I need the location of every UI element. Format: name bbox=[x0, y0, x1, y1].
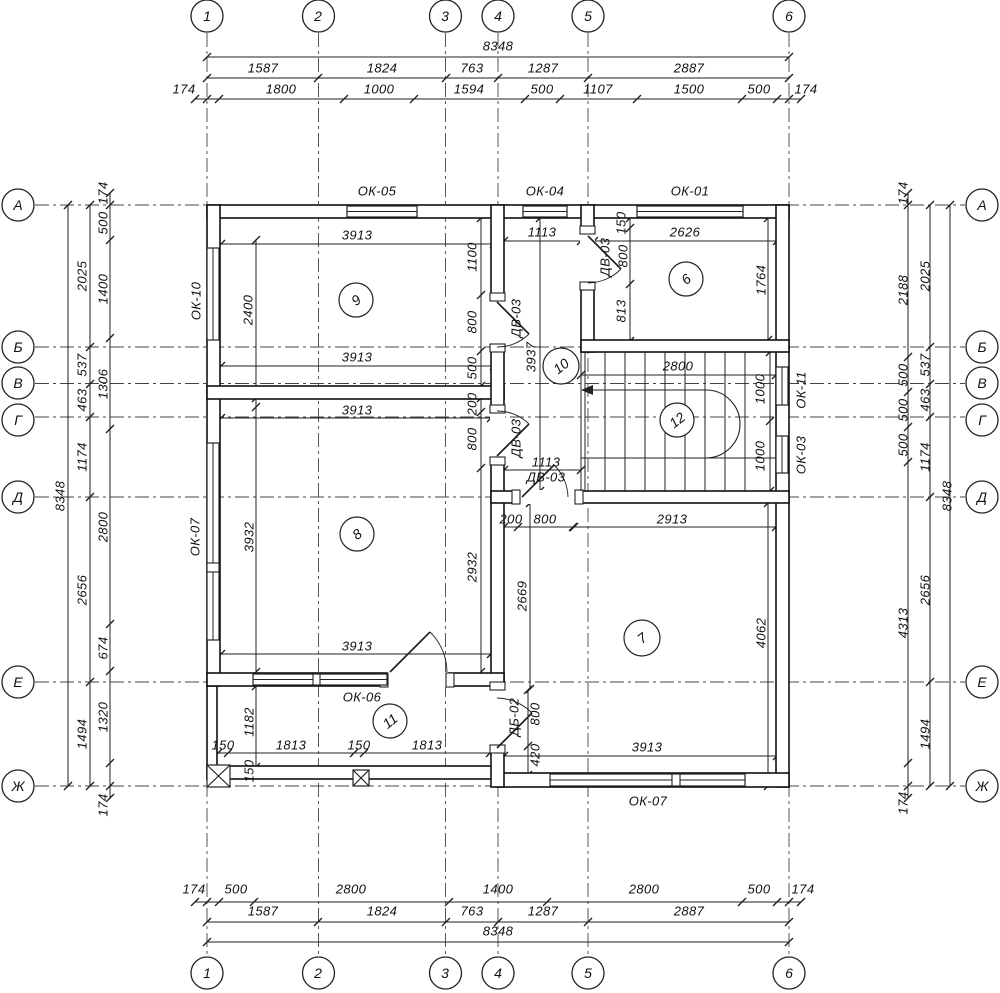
door-label: ДВ-03 bbox=[598, 238, 613, 277]
dim-label: 500 bbox=[896, 434, 911, 457]
dim-label: 500 bbox=[748, 882, 771, 897]
axis-label: Е bbox=[977, 674, 986, 690]
axis-label: А bbox=[977, 197, 986, 213]
dim-label: 3913 bbox=[342, 350, 373, 365]
floor-plan-sheet: 1 2 3 4 5 6 1 2 3 4 5 6 А Б В Г Д Е Ж А … bbox=[0, 0, 1000, 993]
axis-label: В bbox=[977, 375, 986, 391]
door-label: ДВ-03 bbox=[509, 299, 524, 338]
dim-label: 3913 bbox=[342, 228, 373, 243]
dim-label: 174 bbox=[96, 182, 111, 205]
dim-label: 174 bbox=[795, 82, 818, 97]
axis-label: 6 bbox=[785, 965, 793, 981]
dim-label: 1400 bbox=[96, 274, 111, 305]
axis-label: 6 bbox=[785, 8, 793, 24]
dim-label: 2188 bbox=[896, 275, 911, 306]
dim-label: 3913 bbox=[342, 403, 373, 418]
dim-label: 1800 bbox=[266, 82, 297, 97]
axis-label: Д bbox=[13, 489, 23, 505]
dim-label: 1813 bbox=[412, 738, 443, 753]
dim-label: 500 bbox=[896, 399, 911, 422]
window-label: ОК-05 bbox=[358, 184, 397, 199]
dim-label: 174 bbox=[173, 82, 196, 97]
axis-label: 4 bbox=[494, 965, 502, 981]
dim-label: 1182 bbox=[242, 707, 257, 737]
dim-label: 1174 bbox=[918, 442, 933, 472]
dim-label: 500 bbox=[748, 82, 771, 97]
dim-label: 1174 bbox=[75, 442, 90, 472]
axis-label: Д bbox=[977, 489, 987, 505]
dim-label: 4062 bbox=[754, 618, 769, 649]
dim-label: 500 bbox=[465, 357, 480, 380]
dim-label: 2932 bbox=[465, 552, 480, 583]
window-label: ОК-10 bbox=[189, 282, 204, 321]
axis-label: 2 bbox=[314, 8, 322, 24]
dim-label: 1000 bbox=[753, 441, 768, 472]
dim-label: 2800 bbox=[663, 359, 694, 374]
dim-label: 150 bbox=[348, 738, 371, 753]
axis-label: 3 bbox=[441, 965, 449, 981]
axis-label: 5 bbox=[584, 8, 592, 24]
window-label: ОК-03 bbox=[794, 436, 809, 475]
axis-label: Е bbox=[13, 674, 22, 690]
window-label: ОК-07 bbox=[188, 518, 203, 557]
dim-label: 8348 bbox=[940, 481, 955, 512]
dim-label: 800 bbox=[465, 311, 480, 334]
dim-label: 763 bbox=[461, 61, 484, 76]
dim-label: 1594 bbox=[454, 82, 485, 97]
dim-label: 2025 bbox=[918, 261, 933, 292]
dim-label: 2656 bbox=[918, 575, 933, 606]
dim-label: 1400 bbox=[483, 882, 514, 897]
dim-label: 1764 bbox=[754, 265, 769, 296]
dim-label: 1500 bbox=[674, 82, 705, 97]
stair-direction-arrow bbox=[581, 385, 593, 395]
dim-label: 200 bbox=[465, 393, 480, 416]
axis-label: Г bbox=[14, 412, 22, 428]
dim-label: 500 bbox=[896, 364, 911, 387]
dim-label: 1824 bbox=[367, 61, 398, 76]
dim-label: 150 bbox=[614, 212, 629, 235]
dim-label: 1587 bbox=[248, 904, 279, 919]
axis-label: 1 bbox=[203, 8, 211, 24]
dim-label: 1320 bbox=[96, 702, 111, 733]
dim-label: 2800 bbox=[629, 882, 660, 897]
dim-label: 1000 bbox=[364, 82, 395, 97]
dim-label: 8348 bbox=[483, 924, 514, 939]
dim-label: 150 bbox=[242, 760, 257, 783]
dim-label: 2800 bbox=[96, 512, 111, 543]
dim-label: 4313 bbox=[896, 608, 911, 639]
dim-label: 1113 bbox=[532, 455, 561, 470]
dim-label: 1287 bbox=[528, 904, 559, 919]
dim-label: 1000 bbox=[753, 374, 768, 405]
dim-label: 2656 bbox=[75, 575, 90, 606]
dim-label: 763 bbox=[461, 904, 484, 919]
dim-label: 3913 bbox=[342, 639, 373, 654]
dim-label: 1813 bbox=[276, 738, 307, 753]
axis-label: 4 bbox=[494, 8, 502, 24]
dim-label: 1287 bbox=[528, 61, 559, 76]
dim-label: 174 bbox=[183, 882, 206, 897]
dim-label: 2669 bbox=[515, 581, 530, 612]
dim-label: 2887 bbox=[674, 904, 705, 919]
dim-label: 537 bbox=[75, 354, 90, 377]
dim-label: 174 bbox=[792, 882, 815, 897]
axis-label: В bbox=[13, 375, 22, 391]
dim-label: 813 bbox=[614, 300, 629, 323]
axis-label: 5 bbox=[584, 965, 592, 981]
axis-label: Б bbox=[13, 339, 22, 355]
window-label: ОК-06 bbox=[343, 690, 382, 705]
dim-label: 1113 bbox=[528, 225, 557, 240]
dim-label: 500 bbox=[96, 212, 111, 235]
dim-label: 1824 bbox=[367, 904, 398, 919]
dim-label: 2626 bbox=[670, 225, 701, 240]
axis-label: 3 bbox=[441, 8, 449, 24]
dim-label: 8348 bbox=[53, 481, 68, 512]
dim-label: 174 bbox=[896, 792, 911, 815]
axis-label: А bbox=[13, 197, 22, 213]
dim-label: 1306 bbox=[96, 369, 111, 400]
dim-label: 800 bbox=[534, 512, 557, 527]
dim-label: 463 bbox=[918, 389, 933, 412]
dim-label: 537 bbox=[918, 354, 933, 377]
dim-label: 500 bbox=[225, 882, 248, 897]
dim-label: 800 bbox=[616, 245, 631, 268]
dim-label: 3932 bbox=[242, 522, 257, 553]
dim-label: 174 bbox=[896, 182, 911, 205]
dim-label: 1494 bbox=[75, 719, 90, 750]
window-label: ОК-04 bbox=[526, 184, 565, 199]
axis-label: 2 bbox=[314, 965, 322, 981]
dim-label: 463 bbox=[75, 389, 90, 412]
dim-label: 800 bbox=[528, 703, 543, 726]
dim-label: 174 bbox=[96, 794, 111, 817]
dim-label: 2913 bbox=[657, 512, 688, 527]
dim-label: 8348 bbox=[483, 39, 514, 54]
dim-label: 2025 bbox=[75, 261, 90, 292]
dim-label: 1100 bbox=[465, 242, 480, 272]
dim-label: 1587 bbox=[248, 61, 279, 76]
dim-label: 2400 bbox=[241, 295, 256, 326]
window-label: ОК-01 bbox=[671, 184, 710, 199]
dim-label: 3913 bbox=[632, 740, 663, 755]
dim-label: 500 bbox=[531, 82, 554, 97]
axis-label: Ж bbox=[976, 778, 989, 794]
door-label: ДВ-03 bbox=[509, 419, 524, 458]
window-label: ОК-07 bbox=[629, 794, 668, 809]
axis-label: Г bbox=[978, 412, 986, 428]
axis-label: Ж bbox=[12, 778, 25, 794]
dim-label: 420 bbox=[528, 744, 543, 767]
dim-label: 2887 bbox=[674, 61, 705, 76]
dim-label: 674 bbox=[96, 637, 111, 660]
window-label: ОК-11 bbox=[794, 371, 809, 409]
axis-label: Б bbox=[977, 339, 986, 355]
dim-label: 150 bbox=[212, 738, 235, 753]
dim-label: 3937 bbox=[524, 342, 539, 373]
dim-label: 800 bbox=[465, 428, 480, 451]
dim-label: 200 bbox=[500, 512, 523, 527]
door-label: ДВ-03 bbox=[527, 470, 566, 485]
floor-plan-drawing bbox=[0, 0, 1000, 993]
door-label: ДБ-02 bbox=[507, 698, 522, 736]
dim-label: 2800 bbox=[336, 882, 367, 897]
dim-label: 1494 bbox=[918, 719, 933, 750]
dim-label: 1107 bbox=[583, 82, 613, 97]
axis-label: 1 bbox=[203, 965, 211, 981]
